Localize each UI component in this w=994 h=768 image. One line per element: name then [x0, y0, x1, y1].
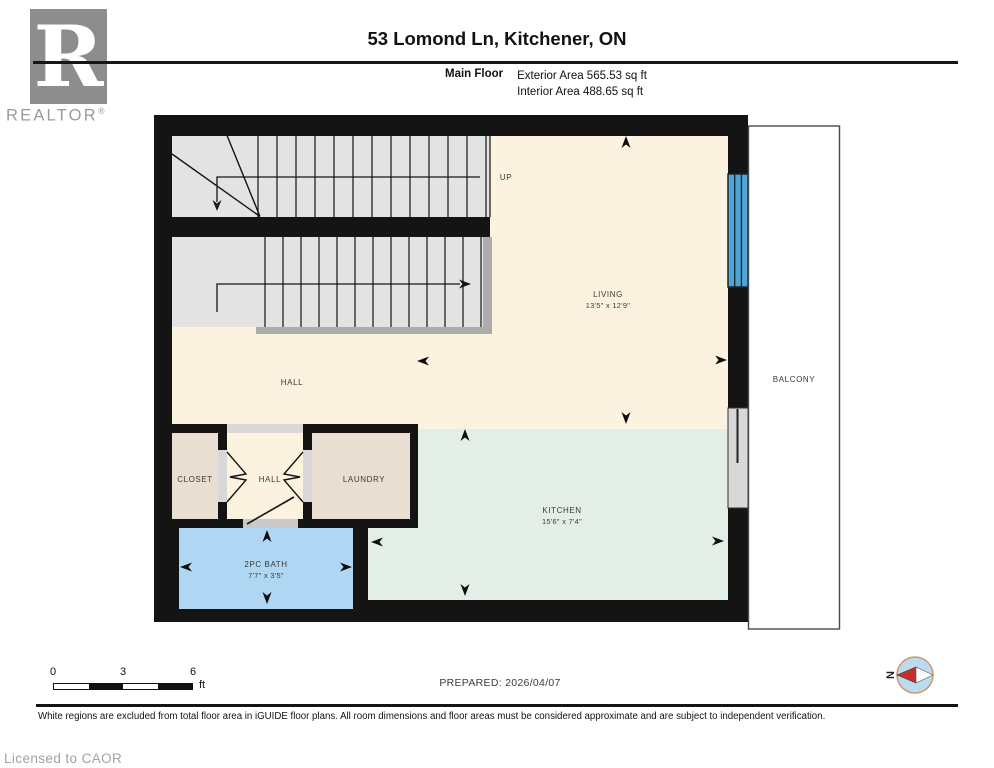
north-compass: N	[868, 652, 942, 700]
exterior-area: Exterior Area 565.53 sq ft	[517, 68, 647, 84]
realtor-logo: R	[30, 9, 107, 104]
prepared-date: PREPARED: 2026/04/07	[380, 677, 620, 689]
license-text: Licensed to CAOR	[4, 751, 122, 766]
registered-mark: ®	[98, 106, 107, 116]
scale-segment	[89, 684, 124, 689]
footer-divider	[36, 704, 958, 707]
floor-name: Main Floor	[445, 68, 503, 100]
hall-top-opening	[227, 424, 303, 433]
floorplan-page: UP LIVING 13'5" x 12'9" HALL CLOSET HALL…	[0, 0, 994, 768]
realtor-wordmark: REALTOR®	[6, 106, 107, 126]
title-divider	[33, 61, 958, 64]
scale-tick-3: 3	[116, 666, 130, 678]
laundry-label: LAUNDRY	[343, 475, 385, 484]
page-title: 53 Lomond Ln, Kitchener, ON	[0, 28, 994, 50]
hall-main-label: HALL	[281, 378, 303, 387]
kitchen-dims: 15'6" x 7'4"	[542, 517, 582, 526]
laundry-door-opening	[303, 450, 312, 502]
hall-bath-threshold	[243, 519, 298, 528]
bath-dims: 7'7" x 3'5"	[248, 571, 284, 580]
disclaimer-text: White regions are excluded from total fl…	[38, 711, 825, 722]
balcony-label: BALCONY	[773, 375, 815, 384]
window	[728, 174, 748, 287]
realtor-wordmark-text: REALTOR	[6, 107, 98, 125]
scale-segment	[123, 684, 158, 689]
stairs-up-label: UP	[500, 173, 512, 182]
balcony-door	[728, 408, 748, 508]
lower-stair-run	[172, 237, 483, 327]
closet-label: CLOSET	[177, 475, 213, 484]
scale-bar	[53, 683, 193, 690]
realtor-logo-letter: R	[34, 9, 104, 104]
scale-tick-6: 6	[186, 666, 200, 678]
closet-door-opening	[218, 450, 227, 502]
floor-areas-text: Exterior Area 565.53 sq ft Interior Area…	[517, 68, 647, 100]
scale-tick-0: 0	[46, 666, 60, 678]
living-label: LIVING	[593, 290, 623, 299]
floor-plan: UP LIVING 13'5" x 12'9" HALL CLOSET HALL…	[0, 0, 994, 768]
living-dims: 13'5" x 12'9"	[586, 301, 631, 310]
scale-segment	[158, 684, 193, 689]
interior-area: Interior Area 488.65 sq ft	[517, 84, 647, 100]
bath-label: 2PC BATH	[244, 560, 287, 569]
floor-summary: Main Floor Exterior Area 565.53 sq ft In…	[445, 68, 647, 100]
hall-entry-label: HALL	[259, 475, 281, 484]
scale-unit: ft	[199, 679, 205, 691]
lower-stair-shadow-right	[483, 237, 492, 333]
compass-north-label: N	[885, 671, 897, 679]
scale-segment	[54, 684, 89, 689]
lower-stair-shadow-bottom	[256, 327, 492, 334]
kitchen-label: KITCHEN	[542, 506, 581, 515]
